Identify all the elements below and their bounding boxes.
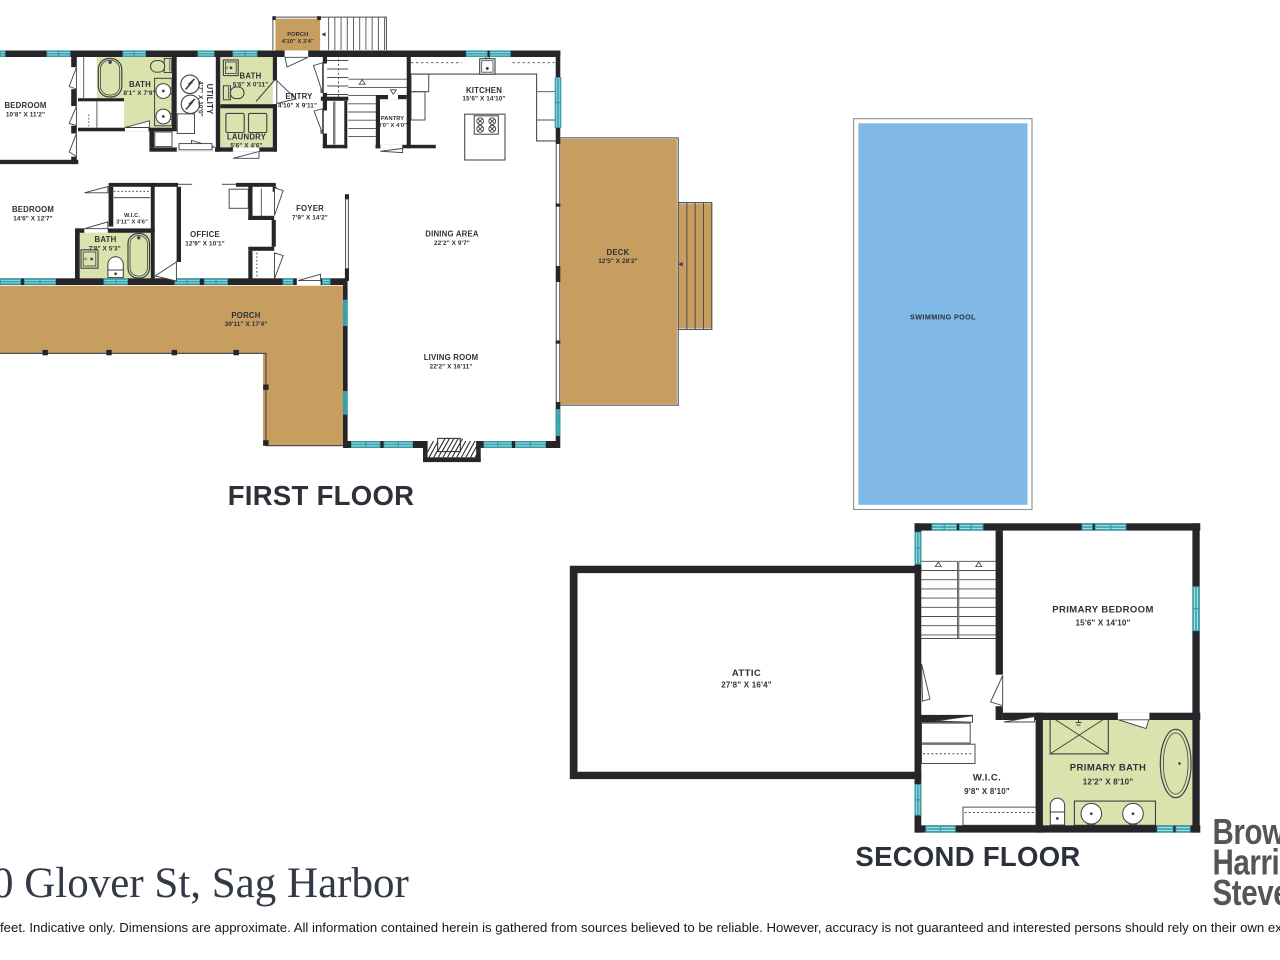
svg-text:LAUNDRY: LAUNDRY <box>227 133 267 142</box>
svg-text:4'7" X 10'0": 4'7" X 10'0" <box>197 81 204 117</box>
svg-text:PORCH: PORCH <box>231 311 260 320</box>
svg-text:12'5" X 28'2": 12'5" X 28'2" <box>598 258 638 265</box>
svg-text:BATH: BATH <box>95 235 117 244</box>
svg-text:Stevens: Stevens <box>1213 872 1280 912</box>
svg-text:FOYER: FOYER <box>296 204 324 213</box>
svg-text:PRIMARY BATH: PRIMARY BATH <box>1070 763 1146 774</box>
svg-text:15'6" X 14'10": 15'6" X 14'10" <box>462 96 505 103</box>
svg-text:15'6" X 14'10": 15'6" X 14'10" <box>1075 619 1130 628</box>
svg-text:5'6" X 0'11": 5'6" X 0'11" <box>233 82 269 89</box>
svg-text:LIVING ROOM: LIVING ROOM <box>424 353 479 362</box>
svg-text:KITCHEN: KITCHEN <box>466 86 502 95</box>
svg-text:W.I.C.: W.I.C. <box>973 773 1001 784</box>
svg-text:FIRST FLOOR: FIRST FLOOR <box>228 480 415 511</box>
svg-text:UTILITY: UTILITY <box>205 84 214 115</box>
svg-text:OFFICE: OFFICE <box>190 230 220 239</box>
svg-text:W.I.C.: W.I.C. <box>124 213 140 219</box>
svg-text:12'9" X 10'1": 12'9" X 10'1" <box>185 241 225 248</box>
svg-text:14'6" X 12'7": 14'6" X 12'7" <box>13 216 53 223</box>
svg-text:PRIMARY BEDROOM: PRIMARY BEDROOM <box>1052 605 1154 616</box>
svg-text:12'2" X 8'10": 12'2" X 8'10" <box>1083 778 1133 787</box>
svg-text:DECK: DECK <box>607 248 630 257</box>
svg-text:BATH: BATH <box>240 72 262 81</box>
svg-text:BATH: BATH <box>129 80 151 89</box>
svg-text:7'9" X 14'2": 7'9" X 14'2" <box>292 215 328 222</box>
svg-text:ENTRY: ENTRY <box>285 92 313 101</box>
svg-text:SWIMMING POOL: SWIMMING POOL <box>910 313 976 322</box>
svg-text:5'6" X 4'6": 5'6" X 4'6" <box>230 143 262 150</box>
svg-text:3'11" X 4'6": 3'11" X 4'6" <box>116 220 148 226</box>
svg-text:3'0" X 4'0": 3'0" X 4'0" <box>378 123 407 129</box>
svg-text:39'11" X 17'4": 39'11" X 17'4" <box>225 321 268 328</box>
svg-text:feet. Indicative only. Dimensi: feet. Indicative only. Dimensions are ap… <box>0 920 1280 935</box>
svg-text:22'2" X 16'11": 22'2" X 16'11" <box>430 364 473 371</box>
svg-text:4'10" X 9'11": 4'10" X 9'11" <box>278 103 317 110</box>
svg-text:SECOND FLOOR: SECOND FLOOR <box>855 841 1080 872</box>
svg-text:ATTIC: ATTIC <box>732 668 761 679</box>
svg-text:9'8" X 8'10": 9'8" X 8'10" <box>964 787 1010 796</box>
svg-text:PORCH: PORCH <box>287 32 308 38</box>
svg-text:DINING AREA: DINING AREA <box>425 230 479 239</box>
svg-text:PANTRY: PANTRY <box>381 116 404 122</box>
svg-text:0 Glover St, Sag Harbor: 0 Glover St, Sag Harbor <box>0 860 409 907</box>
svg-text:27'8" X 16'4": 27'8" X 16'4" <box>721 681 771 690</box>
svg-text:4'10" X 3'4": 4'10" X 3'4" <box>282 39 314 45</box>
svg-text:8'1" X 7'9": 8'1" X 7'9" <box>123 90 155 97</box>
svg-text:7'8" X 5'3": 7'8" X 5'3" <box>89 246 121 253</box>
svg-text:22'2" X 9'7": 22'2" X 9'7" <box>434 240 470 247</box>
svg-text:10'8" X 11'2": 10'8" X 11'2" <box>6 112 45 119</box>
svg-text:BEDROOM: BEDROOM <box>12 205 54 214</box>
svg-text:BEDROOM: BEDROOM <box>4 101 46 110</box>
